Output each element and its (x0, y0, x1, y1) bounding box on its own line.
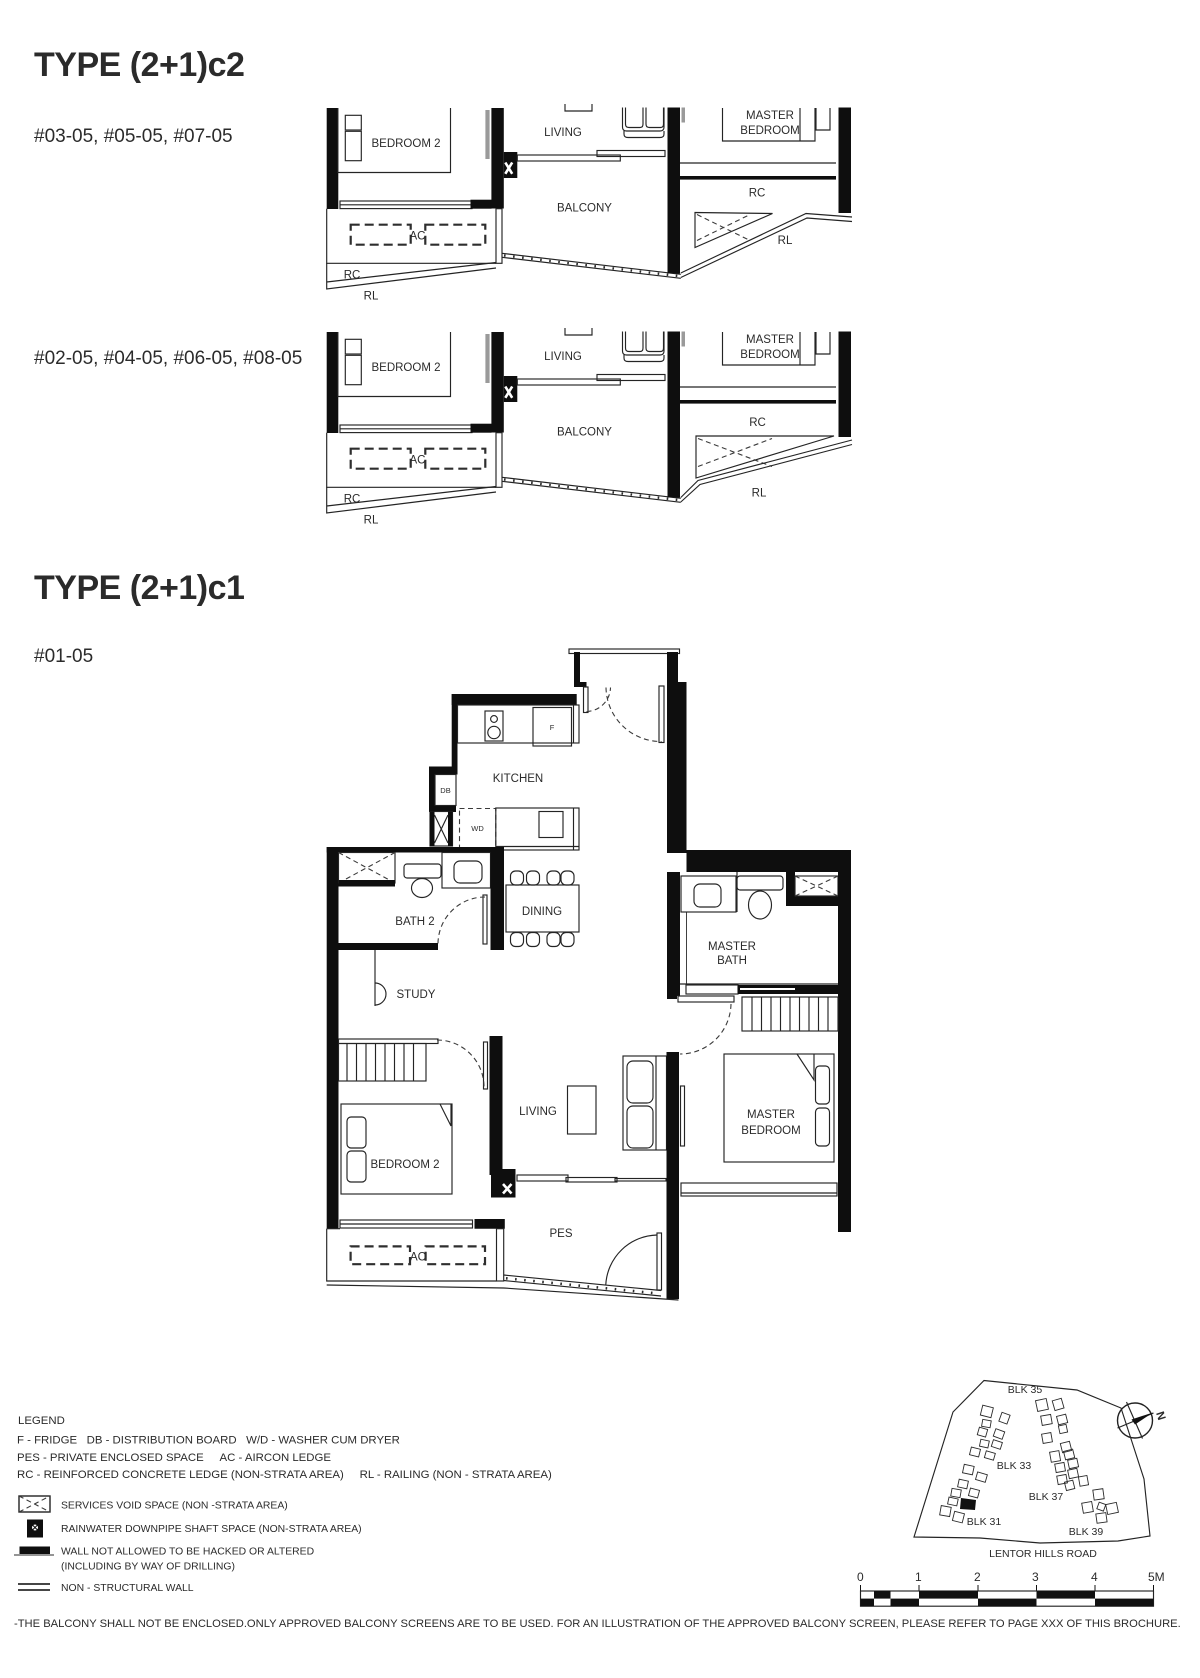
svg-text:2: 2 (974, 1570, 981, 1584)
svg-text:DB: DB (440, 786, 450, 795)
svg-text:MASTER: MASTER (747, 1109, 795, 1121)
svg-text:RC - REINFORCED CONCRETE LEDGE: RC - REINFORCED CONCRETE LEDGE (NON-STRA… (17, 1469, 552, 1481)
svg-text:F: F (550, 723, 555, 732)
svg-text:BLK 39: BLK 39 (1069, 1526, 1104, 1538)
svg-text:RL: RL (778, 235, 793, 247)
svg-text:-THE BALCONY SHALL NOT BE ENCL: -THE BALCONY SHALL NOT BE ENCLOSED.ONLY … (14, 1618, 1181, 1630)
svg-text:DINING: DINING (522, 906, 562, 918)
svg-text:4: 4 (1091, 1570, 1098, 1584)
svg-text:AC: AC (410, 1252, 426, 1264)
svg-text:STUDY: STUDY (397, 989, 436, 1001)
svg-text:RAINWATER DOWNPIPE SHAFT SPACE: RAINWATER DOWNPIPE SHAFT SPACE (NON-STRA… (61, 1524, 362, 1535)
svg-text:LIVING: LIVING (519, 1106, 557, 1118)
svg-text:RC: RC (749, 188, 766, 200)
svg-text:#02-05, #04-05, #06-05, #08-05: #02-05, #04-05, #06-05, #08-05 (34, 348, 302, 369)
svg-text:1: 1 (915, 1570, 922, 1584)
svg-text:RL: RL (752, 488, 767, 500)
svg-text:BATH: BATH (717, 955, 747, 967)
svg-text:3: 3 (1032, 1570, 1039, 1584)
svg-text:RC: RC (749, 417, 766, 429)
svg-text:BLK 31: BLK 31 (967, 1516, 1002, 1528)
svg-text:BLK 33: BLK 33 (997, 1460, 1032, 1472)
svg-text:5M: 5M (1148, 1570, 1165, 1584)
svg-text:PES - PRIVATE ENCLOSED SPACE: PES - PRIVATE ENCLOSED SPACE AC - AIRCON… (17, 1452, 331, 1464)
svg-text:BEDROOM 2: BEDROOM 2 (370, 1159, 439, 1171)
svg-text:F - FRIDGE DB - DISTRIBUTION: F - FRIDGE DB - DISTRIBUTION BOARD W/D -… (17, 1435, 400, 1447)
svg-text:BATH 2: BATH 2 (395, 916, 434, 928)
svg-text:LEGEND: LEGEND (18, 1415, 65, 1427)
svg-text:NON - STRUCTURAL WALL: NON - STRUCTURAL WALL (61, 1583, 194, 1594)
svg-text:MASTER: MASTER (708, 941, 756, 953)
svg-text:BLK 35: BLK 35 (1008, 1384, 1043, 1396)
svg-text:PES: PES (549, 1228, 572, 1240)
svg-text:(INCLUDING BY WAY OF DRILLING): (INCLUDING BY WAY OF DRILLING) (61, 1562, 235, 1573)
svg-text:SERVICES VOID SPACE (NON -STRA: SERVICES VOID SPACE (NON -STRATA AREA) (61, 1501, 288, 1512)
svg-text:WD: WD (471, 824, 484, 833)
svg-text:TYPE (2+1)c1: TYPE (2+1)c1 (34, 569, 244, 607)
svg-text:#01-05: #01-05 (34, 646, 93, 667)
svg-text:TYPE (2+1)c2: TYPE (2+1)c2 (34, 46, 244, 84)
svg-text:BLK 37: BLK 37 (1029, 1491, 1064, 1503)
svg-text:BEDROOM: BEDROOM (741, 1125, 800, 1137)
svg-text:KITCHEN: KITCHEN (493, 773, 543, 785)
svg-text:WALL NOT ALLOWED TO BE HACKED: WALL NOT ALLOWED TO BE HACKED OR ALTERED (61, 1547, 314, 1558)
svg-text:0: 0 (857, 1570, 864, 1584)
svg-text:LENTOR HILLS ROAD: LENTOR HILLS ROAD (989, 1548, 1097, 1560)
svg-text:#03-05, #05-05, #07-05: #03-05, #05-05, #07-05 (34, 126, 233, 147)
